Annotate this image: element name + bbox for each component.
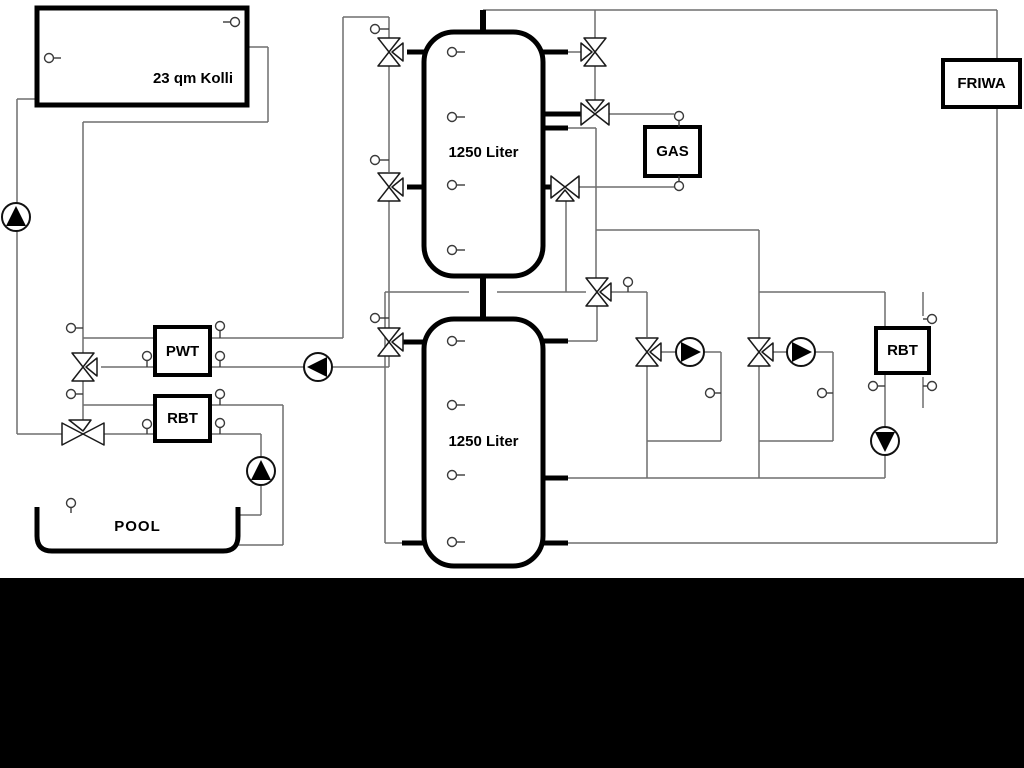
sensor-icon [67, 324, 84, 333]
component-bodies [37, 8, 1020, 566]
valve-tank-top-left-upper-icon [378, 38, 403, 66]
valve-tank-top-right-upper-icon [581, 38, 606, 66]
pool-pump-icon [247, 457, 275, 485]
gas-boiler-label: GAS [645, 127, 700, 176]
sensor-icon [923, 382, 937, 391]
sensor-icon [371, 314, 390, 323]
valve-circuit-2-icon [748, 338, 773, 366]
sensor-icon [923, 315, 937, 324]
pwt-label: PWT [155, 327, 210, 375]
friwa-label: FRIWA [943, 60, 1020, 107]
valve-tank-top-left-lower-icon [378, 173, 403, 201]
sensor-icon [216, 352, 225, 368]
pool-label: POOL [37, 518, 238, 535]
collector-label: 23 qm Kolli [37, 70, 233, 87]
sensor-icon [675, 112, 684, 128]
valve-gas-return-icon [551, 176, 579, 201]
sensor-icon [675, 176, 684, 191]
sensor-icon [216, 419, 225, 435]
valve-heating-distribution-icon [586, 278, 611, 306]
circuit-pump-1-icon [676, 338, 704, 366]
valve-pwt-supply-icon [72, 353, 97, 381]
valve-tank-bottom-left-icon [378, 328, 403, 356]
collector-pump-icon [2, 203, 30, 231]
valve-pool-return-icon [62, 420, 104, 445]
sensor-icon [869, 382, 886, 391]
solar-collector-box [37, 8, 247, 105]
sensor-icon [371, 156, 390, 165]
sensor-icon [818, 389, 834, 398]
circuit-pump-2-icon [787, 338, 815, 366]
buffer-tank-bottom-label: 1250 Liter [424, 433, 543, 450]
sensor-icon [216, 322, 225, 339]
sensor-icon [624, 278, 633, 293]
rbt-right-label: RBT [876, 328, 929, 373]
rbt-return-pump-icon [871, 427, 899, 455]
sensor-icon [216, 390, 225, 406]
buffer-tank-top-label: 1250 Liter [424, 144, 543, 161]
diagram-canvas: 23 qm Kolli 1250 Liter 1250 Liter GAS FR… [0, 0, 1024, 768]
sensor-icon [143, 352, 152, 368]
valve-gas-supply-icon [581, 100, 609, 125]
rbt-left-label: RBT [155, 396, 210, 441]
sensor-icon [371, 25, 390, 34]
valve-circuit-1-icon [636, 338, 661, 366]
sensor-icon [143, 420, 152, 435]
letterbox-bottom [0, 578, 1024, 768]
sensor-icon [67, 499, 76, 514]
pwt-primary-pump-icon [304, 353, 332, 381]
sensor-icon [706, 389, 722, 398]
sensor-icon [67, 390, 84, 399]
